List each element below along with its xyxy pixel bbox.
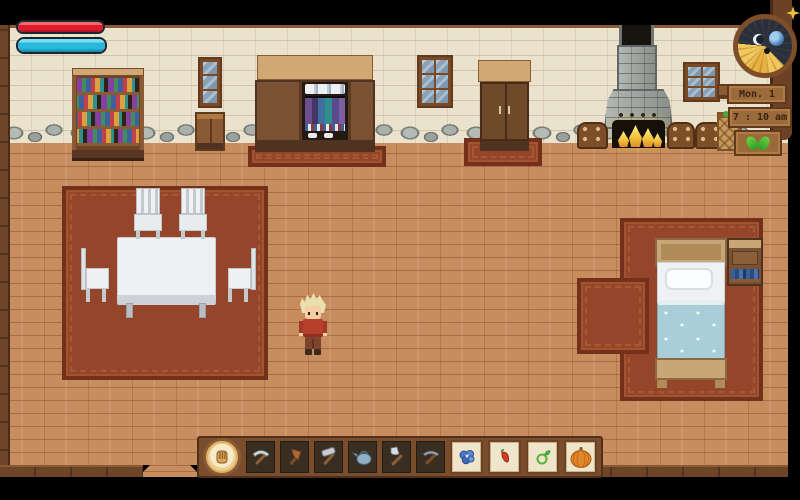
moon-icon [769,31,784,46]
wardrobe-top [257,55,373,80]
open-wardrobe[interactable] [255,55,375,152]
left-wall-board [0,25,10,477]
player-shoe [314,349,321,355]
chair-feet [228,289,251,302]
player-hand [299,333,303,336]
window-pane [703,88,716,97]
hotbar-slot-hand[interactable] [203,438,241,476]
dining-table[interactable] [117,237,216,305]
chair[interactable] [227,248,256,305]
window-pane [688,88,701,97]
wardrobe-interior [302,82,348,140]
doorway-notch [190,465,197,472]
chair-feet [181,231,205,239]
window-pane [422,90,434,103]
player-pants [305,337,321,349]
window-pane [688,78,701,87]
chair-feet [86,289,109,302]
window-pane [203,76,217,88]
window-pane [203,91,217,103]
door-handle [499,106,501,114]
doorway[interactable] [143,465,197,477]
fireplace-vents [616,111,662,119]
chair-seat [228,268,251,289]
player-eye [316,312,318,315]
window-left [198,57,222,108]
day-night-dial [733,14,797,78]
hammer-icon [317,445,341,469]
pepper-seeds-icon [493,445,517,469]
nightstand-top [729,240,761,248]
time-sign: 7 : 10 am [728,107,792,128]
hotbar-slot-green-onion-seeds[interactable] [526,440,559,474]
chair[interactable] [81,248,110,305]
mana-bar-fill [18,39,105,52]
axe-icon [283,445,307,469]
bed-blanket [657,300,725,360]
bed-pillow [665,268,713,290]
wardrobe-door-split [505,84,507,139]
health-bar [16,20,105,34]
player-shoe [305,349,312,355]
window-pane [703,67,716,76]
hotbar-slot-blue-flower-seeds[interactable] [450,440,483,474]
table-leg [126,303,133,318]
wardrobe-base [480,141,529,151]
patterned-quilt [305,124,345,131]
small-moon-icon [753,34,764,45]
hanging-clothes [305,96,345,124]
nightstand[interactable] [727,238,763,286]
table-leg [199,303,206,318]
time-label: 7 : 10 am [733,112,787,123]
bed-footboard [655,358,727,380]
bookshelf-base [72,150,144,161]
chair-seat [86,268,109,289]
chimney [617,45,657,95]
window-pane [436,75,448,88]
wardrobe-base [255,142,375,152]
small-dresser[interactable] [195,112,225,151]
firewood-stack[interactable] [577,122,608,149]
bed[interactable] [655,238,727,388]
watering-can-icon [351,445,375,469]
bed-legs [657,380,725,388]
green-onion-seeds-icon [531,445,555,469]
book-row [77,112,139,129]
hotbar-slot-shovel[interactable] [382,441,411,473]
window-pane [422,60,434,73]
room-interior [0,25,788,477]
firewood-stack[interactable] [667,122,695,149]
flame-icon [653,133,662,147]
flame-icon [629,125,642,147]
hotbar-slot-dark-pickaxe[interactable] [416,441,445,473]
season-sign [734,130,782,156]
game-screen: Mon. 1 7 : 10 am [0,0,800,500]
window-pane [436,90,448,103]
player-hand [323,333,327,336]
mana-bar [16,37,107,54]
nightstand-drawer [732,251,758,265]
shoe [324,133,333,138]
book-row [77,129,139,146]
chair-back-slats [136,188,160,214]
firebox[interactable] [612,120,665,148]
wardrobe-right-door[interactable] [348,82,373,140]
hotbar-slot-pepper-seeds[interactable] [488,440,521,474]
player-arm [323,321,327,333]
window-pane [436,60,448,73]
pumpkin-icon [568,444,594,470]
player-shirt [303,319,323,337]
chair-seat [134,214,162,231]
book-row [77,78,139,95]
closed-wardrobe[interactable] [478,60,531,151]
glove-icon [213,448,231,466]
hotbar-slot-pickaxe[interactable] [246,441,275,473]
bed-rug-extension [577,278,649,354]
hotbar-slot-hammer[interactable] [314,441,343,473]
dark-pickaxe-icon [419,445,443,469]
flame-icon [642,128,654,147]
window-pane [703,78,716,87]
chair-back-slats [181,188,205,214]
window-pane [422,75,434,88]
shoe [308,133,317,138]
chair-back-post [251,248,256,290]
player-eye [308,312,310,315]
hotbar-slot-pumpkin[interactable] [564,440,597,474]
shovel-icon [385,445,409,469]
window-pane [688,67,701,76]
dresser-door-split [210,119,212,145]
player-character [296,293,330,357]
hotbar [197,436,603,478]
day-sign: Mon. 1 [727,84,787,104]
dresser-base [197,143,223,149]
blue-flower-seeds-icon [455,445,479,469]
hotbar-slot-axe[interactable] [280,441,309,473]
wardrobe-left-door[interactable] [257,82,302,140]
flame-icon [618,131,629,147]
wardrobe-top [478,60,531,82]
health-bar-fill [18,22,103,32]
sprout-icon [747,135,769,151]
door-handle [508,106,510,114]
pickaxe-icon [249,445,273,469]
window-center [417,55,453,108]
doorway-notch [143,465,150,472]
window-pane [203,62,217,74]
bookshelf-top [72,68,144,76]
book-row [77,95,139,112]
chair[interactable] [179,188,207,239]
bookshelf-case [72,76,144,150]
chair-feet [136,231,160,239]
chair[interactable] [134,188,162,239]
bookshelf[interactable] [72,68,144,161]
chair-seat [179,214,207,231]
chimney-opening [619,25,654,47]
hotbar-slot-watering-can[interactable] [348,441,377,473]
window-right [683,62,720,102]
dial-dot [764,48,770,54]
folded-towels [305,84,345,94]
day-label: Mon. 1 [739,89,775,100]
nightstand-books [731,269,759,282]
